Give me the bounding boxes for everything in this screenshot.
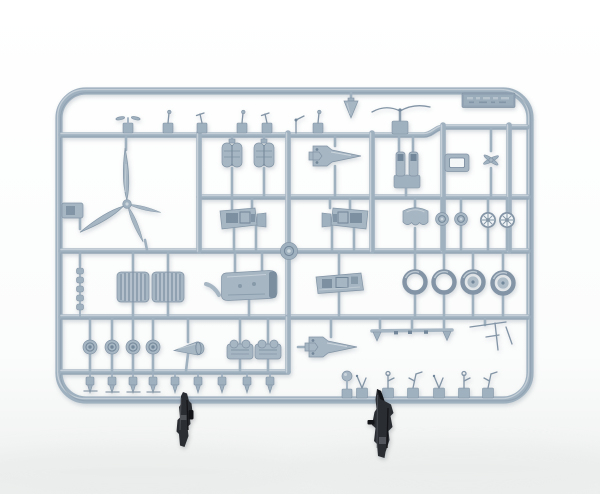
engine-cowling-front: [403, 208, 428, 225]
wheel-hub-cover: [146, 340, 160, 354]
embossed-label-plate: [462, 93, 515, 108]
wheel-hub-cover: [126, 340, 140, 354]
frame-edge-bracket-part: [62, 203, 83, 218]
spoked-wheel-hub: [500, 213, 514, 227]
wheel-hub-face: [455, 213, 468, 226]
windscreen-frame-part: [445, 154, 469, 172]
wheel-hub-face: [436, 213, 449, 226]
central-round-connector: [280, 242, 297, 259]
sprue-photo: [0, 0, 600, 494]
spoked-wheel-hub: [481, 213, 495, 227]
fuselage-deck-part: [222, 271, 278, 301]
cockpit-floor-part: [316, 273, 364, 294]
engine-cylinder-bank: [222, 139, 242, 167]
wheel-hub-cover: [105, 340, 119, 354]
engine-cylinder-bank: [254, 139, 274, 167]
sprue-photo-canvas: [0, 0, 600, 494]
radiator-core: [152, 272, 184, 302]
wheel-hub-cover: [83, 340, 97, 354]
radiator-core: [117, 272, 149, 302]
